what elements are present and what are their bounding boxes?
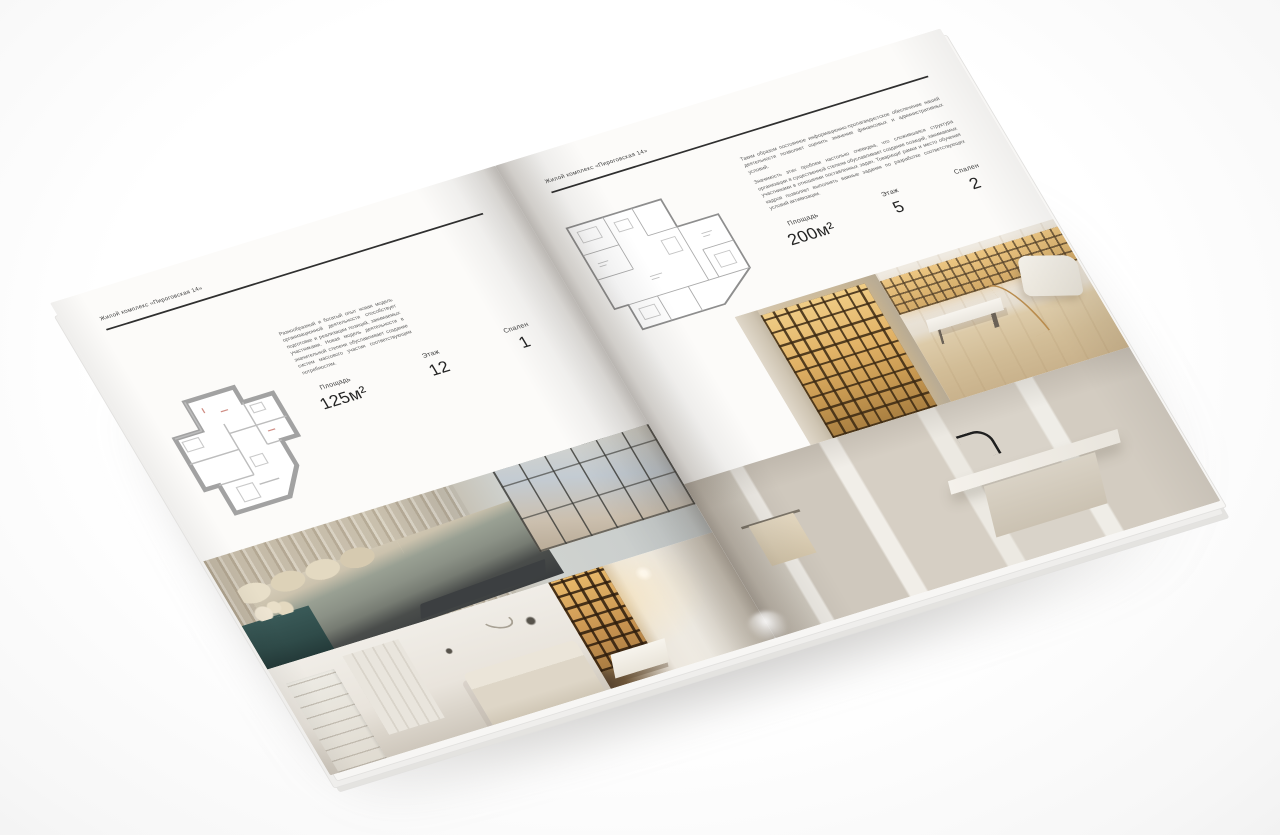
stat-area: Площадь 125м² [310, 373, 372, 414]
pillows-shape [233, 536, 406, 607]
stat-floor-value: 12 [426, 358, 455, 381]
stat-floor-value: 5 [886, 197, 913, 219]
scene: Жилой комплекс «Пироговская 14» Разнообр… [0, 0, 1280, 835]
console-table-shape [611, 638, 670, 678]
floor-plan-125 [148, 370, 338, 527]
faucet-shape [956, 427, 1002, 462]
stat-bedrooms-value: 1 [508, 331, 542, 355]
desk-shape [536, 450, 577, 471]
stat-floor-label: Этаж [419, 347, 442, 360]
stat-floor: Этаж 12 [419, 347, 454, 380]
stat-area: Площадь 200м² [778, 208, 840, 249]
chaise-shape [1017, 255, 1085, 297]
magazine-spread: Жилой комплекс «Пироговская 14» Разнообр… [50, 28, 1220, 775]
armchair-shape [580, 435, 662, 470]
stat-bedrooms: Спален 2 [952, 161, 993, 196]
stat-floor-label: Этаж [879, 186, 900, 198]
wreath-decor-shape [481, 612, 514, 630]
stat-floor: Этаж 5 [879, 186, 912, 219]
stat-bedrooms: Спален 1 [502, 320, 543, 355]
left-apartment-info: Разнообразный и богатый опыт новая модел… [278, 265, 543, 414]
stat-bedrooms-value: 2 [958, 172, 992, 196]
